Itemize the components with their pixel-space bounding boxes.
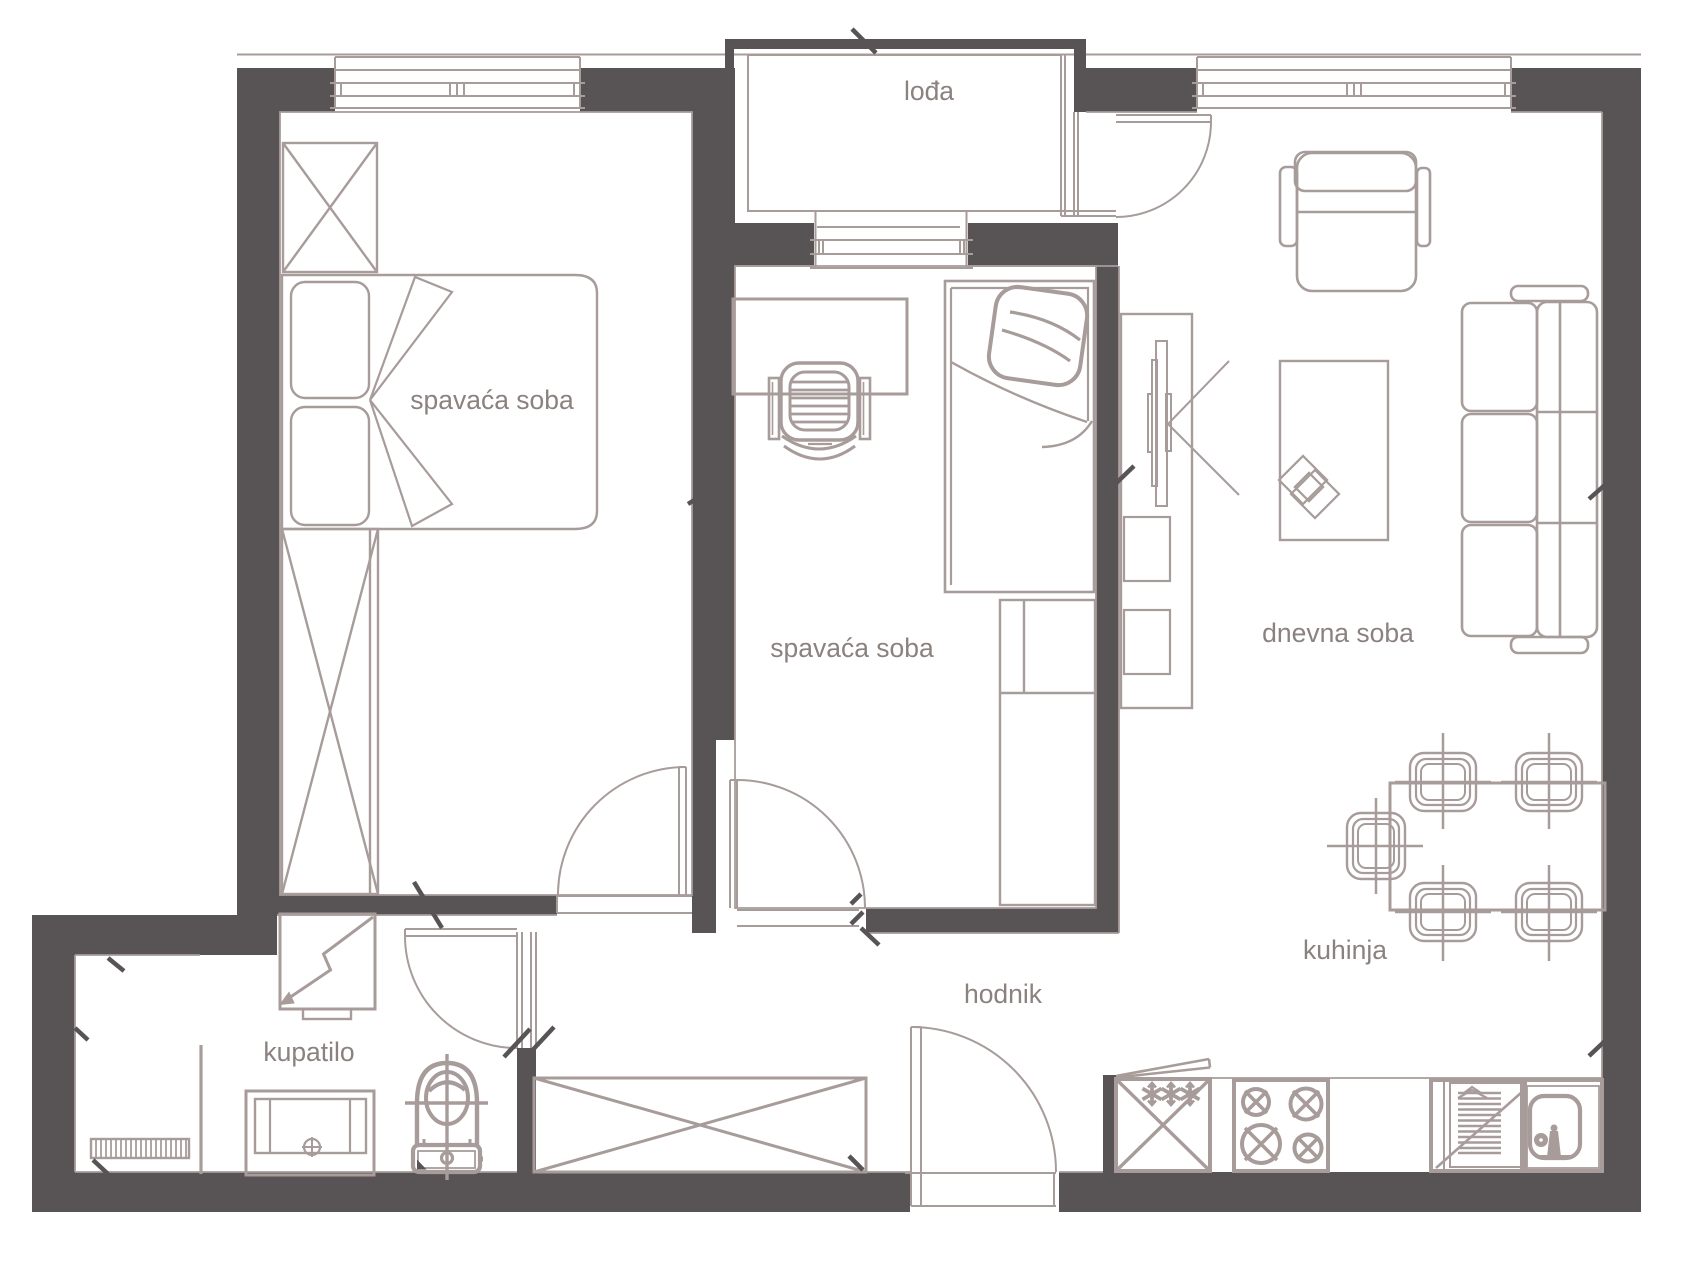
svg-text:lođa: lođa (904, 76, 954, 106)
svg-text:spavaća soba: spavaća soba (410, 385, 574, 415)
svg-text:kuhinja: kuhinja (1303, 935, 1387, 965)
svg-text:dnevna soba: dnevna soba (1262, 618, 1414, 648)
svg-text:kupatilo: kupatilo (263, 1037, 354, 1067)
svg-text:hodnik: hodnik (964, 979, 1043, 1009)
svg-text:spavaća soba: spavaća soba (770, 633, 934, 663)
